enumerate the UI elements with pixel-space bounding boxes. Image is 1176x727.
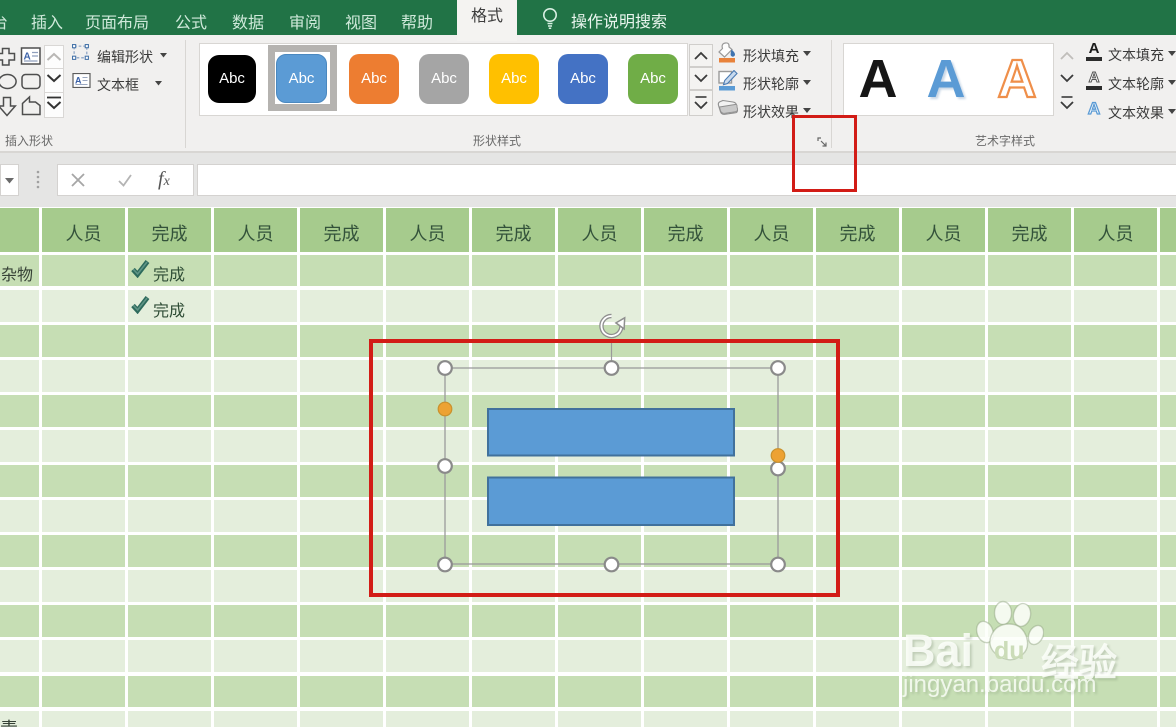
- svg-text:du: du: [994, 637, 1025, 665]
